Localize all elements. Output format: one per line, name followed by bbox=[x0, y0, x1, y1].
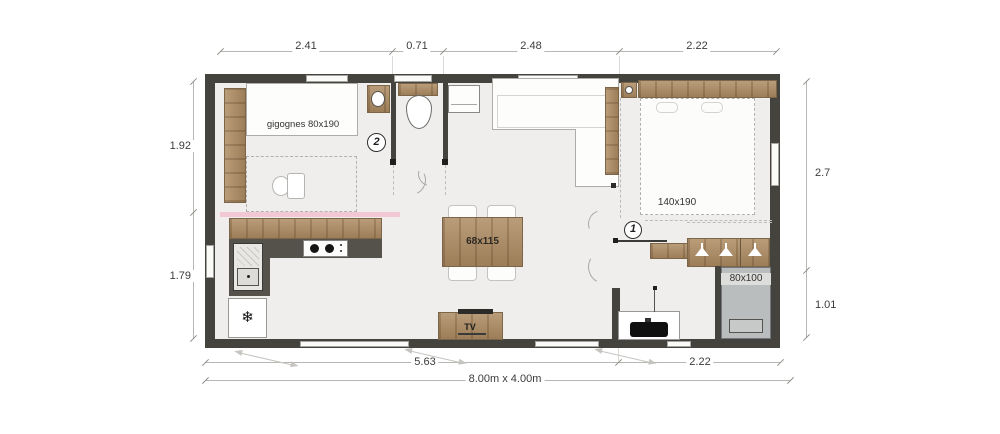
fridge: ❄ bbox=[228, 298, 267, 338]
bedroom1-door-hinge bbox=[613, 238, 618, 243]
window-bottom-living bbox=[300, 341, 409, 347]
washing-machine bbox=[448, 85, 480, 113]
bed-gigognes-label: gigognes 80x190 bbox=[248, 119, 358, 131]
room-marker-2: 2 bbox=[367, 133, 386, 152]
tv-cabinet-drawer-line bbox=[458, 333, 486, 335]
dim-label-bottom-1: 5.63 bbox=[411, 356, 438, 368]
hanger-icon bbox=[719, 243, 733, 259]
shower-tray bbox=[729, 319, 763, 333]
pillow bbox=[656, 102, 678, 113]
dim-tick bbox=[803, 334, 810, 341]
bedroom1-door-leaf bbox=[617, 240, 667, 242]
dim-label-bottom-2: 2.22 bbox=[686, 356, 713, 368]
dim-ext bbox=[443, 56, 444, 74]
window-bottom-bathroom bbox=[667, 341, 691, 347]
dim-ext bbox=[392, 56, 393, 74]
kid-chair-icon bbox=[270, 168, 306, 202]
dim-label-right-1: 2.7 bbox=[812, 167, 833, 179]
sofa-seat-line bbox=[497, 95, 614, 128]
dim-tick bbox=[190, 335, 197, 342]
floor-plan: gigognes 80x190 ❄ bbox=[0, 0, 1000, 434]
burner-left bbox=[310, 244, 319, 253]
kitchen-upper-cabinets bbox=[229, 218, 382, 239]
stove bbox=[303, 240, 348, 257]
partition-post bbox=[611, 183, 616, 188]
dim-line-right bbox=[806, 81, 807, 337]
slide-arrow-icon bbox=[238, 352, 295, 366]
snowflake-icon: ❄ bbox=[229, 308, 266, 326]
burner-right bbox=[325, 244, 334, 253]
dim-label-top-3: 2.48 bbox=[517, 40, 544, 52]
wardrobe-dashed-boundary bbox=[687, 222, 772, 224]
sink-drain-dot bbox=[247, 275, 250, 278]
dining-table-label: 68x115 bbox=[442, 236, 523, 248]
wc-vanity-bowl bbox=[371, 91, 385, 107]
kid-chair-back bbox=[287, 173, 305, 199]
window-left-kitchen bbox=[206, 245, 214, 278]
dim-label-top-1: 2.41 bbox=[292, 40, 319, 52]
window-top-bedroom2 bbox=[306, 75, 348, 82]
dining-chair bbox=[487, 265, 516, 281]
master-bed-label: 140x190 bbox=[646, 197, 708, 209]
kitchen-sink bbox=[233, 243, 263, 291]
headboard-shelf bbox=[638, 80, 777, 98]
nightstand bbox=[621, 82, 637, 98]
dim-ext bbox=[619, 56, 620, 74]
tv-label: TV bbox=[455, 321, 485, 333]
right-wall bbox=[770, 74, 780, 348]
dim-label-overall: 8.00m x 4.00m bbox=[466, 373, 545, 385]
dim-label-right-2: 1.01 bbox=[812, 299, 839, 311]
bottom-wall bbox=[205, 339, 780, 348]
wardrobe-return bbox=[650, 243, 688, 259]
dim-tick bbox=[773, 48, 780, 55]
partition-pink-wall bbox=[220, 212, 400, 217]
window-top-wc bbox=[394, 75, 432, 82]
wc-vanity bbox=[367, 85, 390, 113]
dim-label-top-2: 0.71 bbox=[403, 40, 430, 52]
sink-drainboard bbox=[237, 247, 259, 266]
wc-door-gap-right bbox=[445, 165, 447, 195]
wc-wall-left bbox=[391, 83, 396, 161]
bathroom-tap bbox=[645, 318, 651, 322]
wardrobe-divider bbox=[740, 238, 741, 267]
wardrobe-bedroom2 bbox=[224, 88, 246, 203]
stove-knob-2 bbox=[340, 250, 342, 252]
tv-screen bbox=[458, 309, 493, 314]
partition-panel bbox=[605, 87, 619, 175]
dim-label-top-4: 2.22 bbox=[683, 40, 710, 52]
sofa-main bbox=[492, 78, 619, 130]
dining-chair bbox=[448, 265, 477, 281]
bathroom-sink bbox=[630, 322, 668, 337]
dim-tick bbox=[787, 377, 794, 384]
room-marker-1: 1 bbox=[624, 221, 642, 239]
hanger-icon bbox=[748, 243, 762, 259]
hanger-icon bbox=[695, 243, 709, 259]
dim-tick bbox=[777, 359, 784, 366]
stove-knob-1 bbox=[340, 244, 342, 246]
left-wall bbox=[205, 74, 215, 348]
door-bottom-entrance bbox=[535, 341, 599, 347]
dim-label-left-1: 1.92 bbox=[155, 140, 194, 152]
nightstand-lamp bbox=[625, 86, 633, 94]
bedroom1-open-boundary bbox=[620, 98, 622, 218]
bathroom-vanity bbox=[618, 311, 680, 340]
pillow bbox=[701, 102, 723, 113]
dim-label-left-2: 1.79 bbox=[155, 270, 194, 282]
bathroom-door-line bbox=[654, 290, 655, 312]
shower-label: 80x100 bbox=[721, 273, 771, 285]
window-right-bedroom1 bbox=[771, 143, 779, 186]
washing-machine-line bbox=[451, 104, 477, 105]
